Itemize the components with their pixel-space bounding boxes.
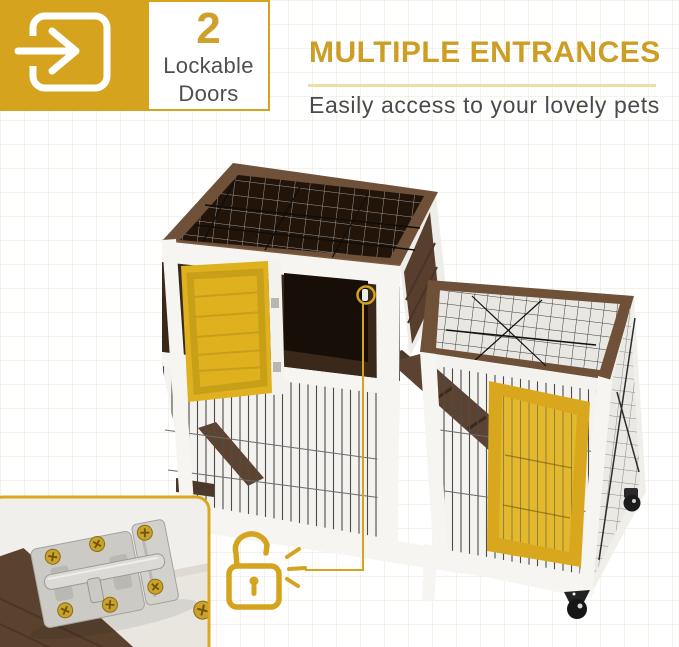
badge-text-box: 2 Lockable Doors <box>147 0 270 111</box>
badge-label: Lockable Doors <box>163 52 253 107</box>
lockable-doors-badge: 2 Lockable Doors <box>0 0 270 111</box>
front-caster-wheel <box>564 590 590 619</box>
headline-underline <box>308 84 656 87</box>
product-infographic: 2 Lockable Doors MULTIPLE ENTRANCES Easi… <box>0 0 679 647</box>
front-right-post <box>376 266 400 560</box>
badge-label-line2: Doors <box>163 80 253 108</box>
door-enter-icon <box>0 0 147 111</box>
headline-title: MULTIPLE ENTRANCES <box>309 36 661 70</box>
door-latch <box>362 289 368 301</box>
hutch-yellow-door <box>181 260 285 402</box>
run-yellow-door <box>487 381 590 567</box>
click-lines-icon <box>287 549 305 586</box>
badge-count: 2 <box>196 6 220 52</box>
rear-caster-wheel <box>624 488 641 512</box>
badge-label-line1: Lockable <box>163 52 253 80</box>
headline-subtitle: Easily access to your lovely pets <box>309 92 660 119</box>
